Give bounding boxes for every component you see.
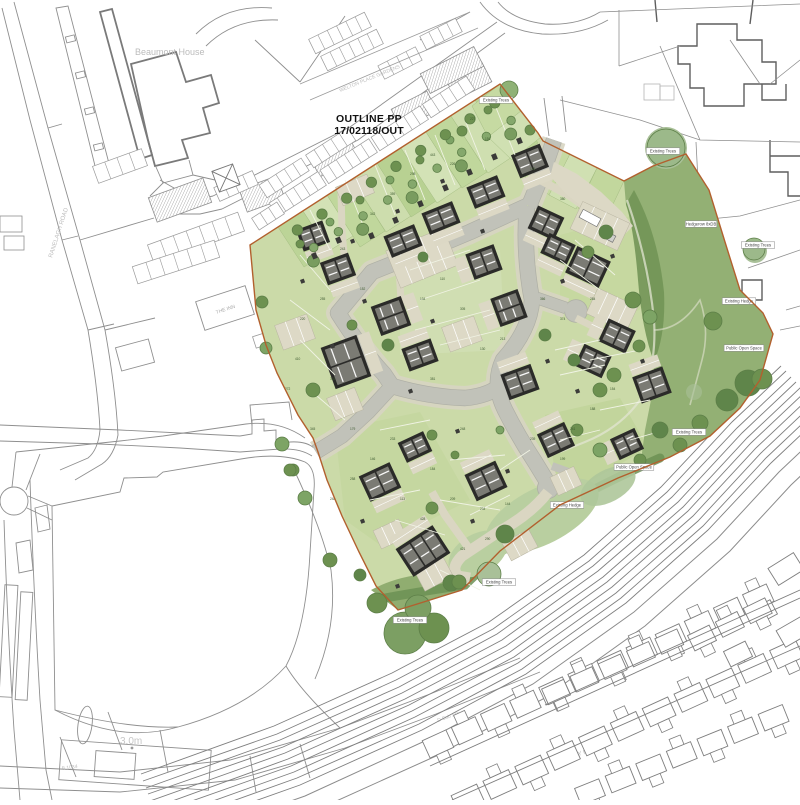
svg-text:209: 209 (450, 497, 456, 501)
svg-text:Public Open Space: Public Open Space (616, 465, 653, 470)
svg-text:255: 255 (320, 297, 326, 301)
svg-text:226: 226 (450, 162, 456, 166)
svg-text:146: 146 (370, 457, 376, 461)
svg-text:154: 154 (610, 387, 616, 391)
svg-text:241: 241 (570, 427, 576, 431)
svg-text:342: 342 (370, 212, 376, 216)
svg-text:302: 302 (330, 377, 336, 381)
svg-text:145: 145 (530, 167, 536, 171)
svg-text:421: 421 (460, 547, 466, 551)
svg-text:152: 152 (360, 287, 366, 291)
svg-text:374: 374 (560, 317, 566, 321)
svg-text:298: 298 (410, 172, 416, 176)
svg-text:227: 227 (470, 117, 476, 121)
svg-text:213: 213 (500, 337, 506, 341)
svg-text:Existing Trees: Existing Trees (676, 430, 702, 435)
svg-text:290: 290 (485, 537, 491, 541)
svg-text:3.0m: 3.0m (120, 736, 142, 747)
svg-text:Existing Trees: Existing Trees (483, 98, 509, 103)
svg-text:220: 220 (300, 317, 306, 321)
svg-text:233: 233 (390, 437, 396, 441)
svg-text:191: 191 (485, 137, 491, 141)
svg-text:Hedgerow 8xDB: Hedgerow 8xDB (686, 222, 717, 227)
svg-text:359: 359 (390, 192, 396, 196)
svg-text:345: 345 (310, 427, 316, 431)
svg-text:428: 428 (420, 517, 426, 521)
svg-text:113: 113 (400, 497, 405, 501)
svg-text:284: 284 (590, 297, 596, 301)
svg-text:Existing Trees: Existing Trees (486, 580, 512, 585)
svg-text:110: 110 (440, 277, 445, 281)
svg-text:305: 305 (460, 307, 466, 311)
svg-text:184: 184 (430, 467, 436, 471)
svg-text:Existing Trees: Existing Trees (397, 618, 423, 623)
svg-text:380: 380 (560, 197, 566, 201)
svg-text:17/02118/OUT: 17/02118/OUT (334, 125, 404, 137)
svg-text:243: 243 (340, 247, 346, 251)
svg-text:OUTLINE PP: OUTLINE PP (336, 113, 402, 125)
svg-text:Beaumont House: Beaumont House (135, 47, 205, 57)
svg-text:248: 248 (460, 427, 466, 431)
svg-text:239: 239 (530, 437, 536, 441)
svg-text:144: 144 (505, 502, 511, 506)
svg-text:199: 199 (560, 457, 566, 461)
svg-text:258: 258 (350, 477, 356, 481)
svg-text:443: 443 (430, 153, 436, 157)
svg-text:381: 381 (430, 377, 436, 381)
svg-text:Existing Trees: Existing Trees (745, 243, 771, 248)
svg-text:366: 366 (540, 297, 546, 301)
svg-text:134: 134 (420, 297, 426, 301)
svg-text:188: 188 (590, 407, 596, 411)
svg-text:179: 179 (350, 427, 356, 431)
svg-text:410: 410 (295, 357, 301, 361)
svg-text:130: 130 (480, 347, 486, 351)
svg-text:Public Open Space: Public Open Space (726, 346, 763, 351)
svg-text:234: 234 (480, 507, 486, 511)
svg-text:Existing Trees: Existing Trees (650, 149, 676, 154)
